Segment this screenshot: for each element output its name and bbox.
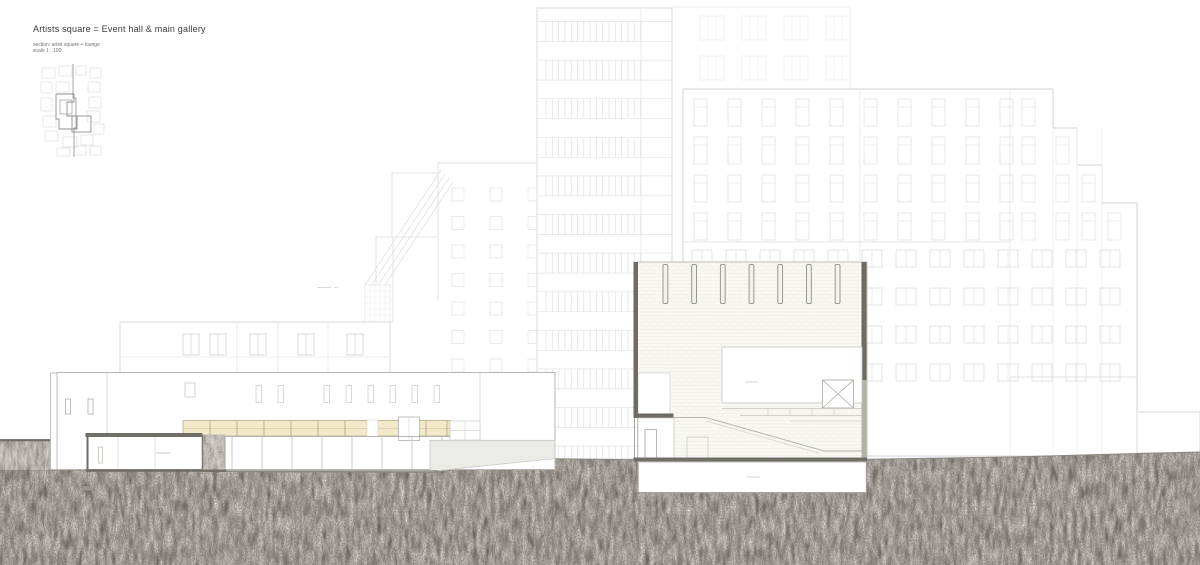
- facade-window: [434, 386, 440, 403]
- right-gallery-section: [634, 262, 868, 493]
- bg-window: [700, 16, 724, 40]
- facade-window: [278, 386, 284, 403]
- facade-window: [185, 383, 195, 397]
- architectural-drawing-sheet: Artists square = Event hall & main galle…: [0, 0, 1200, 565]
- concrete-pier-grain: [202, 435, 225, 471]
- bg-window: [742, 56, 766, 80]
- bg-window: [490, 274, 502, 287]
- lounge-door: [99, 447, 103, 463]
- column-footing: [82, 486, 93, 491]
- map-block: [74, 146, 86, 155]
- map-block: [57, 148, 70, 156]
- section-drawing: [0, 0, 1200, 565]
- roof-slot-window: [835, 265, 840, 304]
- lower-room-door: [645, 430, 657, 459]
- roof-slot-window: [692, 265, 697, 304]
- cut-wall-foot: [634, 414, 674, 419]
- roof-slot-window: [749, 265, 754, 304]
- lounge-roof-slab: [86, 433, 203, 437]
- clerestory-gap: [367, 420, 378, 437]
- bg-window: [490, 245, 502, 258]
- bg-window: [452, 245, 464, 258]
- facade-window: [66, 399, 71, 414]
- map-block: [43, 116, 56, 127]
- map-block: [41, 98, 52, 111]
- site-plan-map: [41, 64, 104, 157]
- bg-window: [490, 331, 502, 344]
- map-block: [63, 137, 77, 147]
- map-block: [45, 131, 58, 141]
- map-site-outline: [72, 116, 91, 132]
- bg-ramp-line: [377, 182, 453, 297]
- column-footing: [192, 477, 203, 482]
- map-block: [88, 82, 100, 92]
- bg-window: [700, 56, 724, 80]
- bg-window: [784, 56, 808, 80]
- drawing-scale: scale 1 : 100: [33, 48, 206, 54]
- bg-low-wall: [1137, 412, 1200, 453]
- bg-window: [452, 359, 464, 372]
- bg-ramp-line: [369, 174, 445, 289]
- facade-window: [368, 386, 374, 403]
- bg-window: [452, 217, 464, 230]
- bg-window: [826, 56, 850, 80]
- map-section-line: [73, 64, 76, 157]
- bg-window: [452, 274, 464, 287]
- map-block: [56, 82, 69, 92]
- map-block: [42, 68, 55, 78]
- facade-window: [346, 386, 352, 403]
- roof-slot-window: [720, 265, 725, 304]
- roof-slot-window: [663, 265, 668, 304]
- bg-window: [826, 16, 850, 40]
- building-pilaster: [51, 373, 58, 470]
- retaining-wall-cut-grain: [0, 440, 55, 471]
- bg-window: [490, 359, 502, 372]
- cut-wall-left: [634, 262, 639, 418]
- facade-window: [256, 386, 262, 403]
- map-block: [41, 82, 52, 93]
- facade-window: [390, 386, 396, 403]
- map-block: [87, 111, 100, 122]
- title-block: Artists square = Event hall & main galle…: [33, 24, 206, 54]
- bg-window: [452, 302, 464, 315]
- bg-window: [742, 16, 766, 40]
- facade-window: [88, 399, 93, 414]
- bg-window: [490, 302, 502, 315]
- map-block: [90, 68, 101, 78]
- facade-window: [412, 386, 418, 403]
- roof-slot-window: [778, 265, 783, 304]
- bg-window: [784, 16, 808, 40]
- drawing-title: Artists square = Event hall & main galle…: [33, 24, 206, 34]
- bg-ramp-line: [365, 170, 441, 285]
- facade-window: [324, 386, 330, 403]
- bg-window: [452, 188, 464, 201]
- bg-window: [490, 188, 502, 201]
- map-site-outline: [56, 94, 77, 129]
- map-block: [89, 97, 101, 108]
- map-block: [90, 146, 101, 155]
- bg-grid: [365, 285, 390, 322]
- map-block: [94, 124, 104, 134]
- roof-slot-window: [807, 265, 812, 304]
- lightwell: [638, 373, 670, 415]
- map-block: [59, 66, 72, 76]
- map-block: [81, 135, 93, 145]
- bg-building-outline: [672, 7, 850, 89]
- map-block: [76, 66, 86, 75]
- bg-window: [490, 217, 502, 230]
- bg-window: [452, 331, 464, 344]
